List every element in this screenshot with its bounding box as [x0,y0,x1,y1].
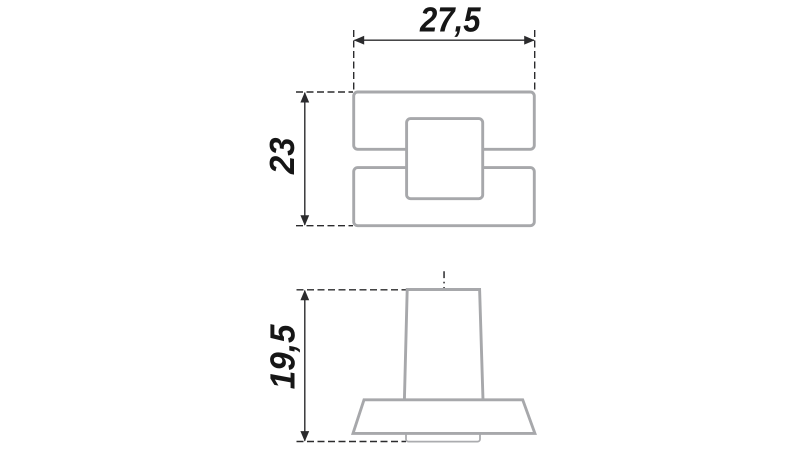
svg-text:23: 23 [263,137,302,175]
svg-text:19,5: 19,5 [264,324,303,389]
svg-text:27,5: 27,5 [419,1,481,40]
